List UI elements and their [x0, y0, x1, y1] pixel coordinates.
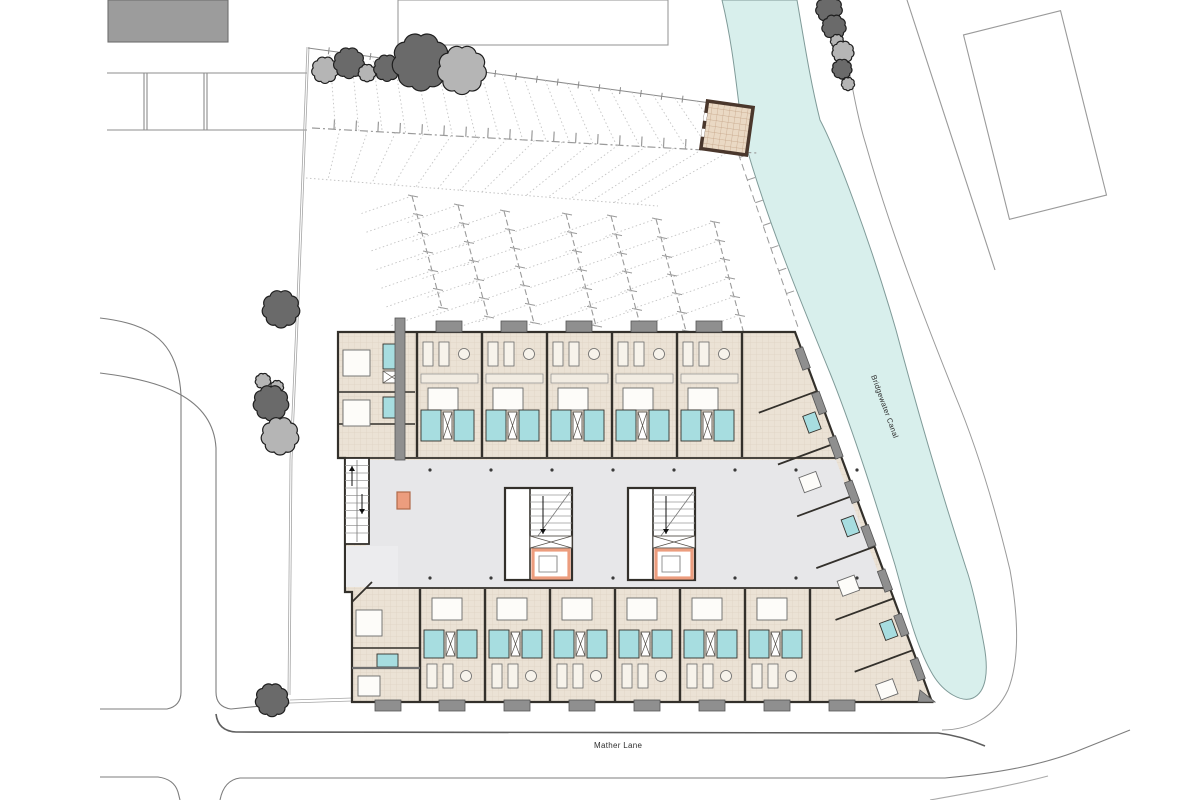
lift-shaft [397, 492, 410, 509]
bathroom-pod [714, 410, 734, 441]
bed [497, 598, 527, 620]
sofa [504, 342, 514, 366]
parking-stall-line [452, 211, 504, 229]
table [589, 349, 600, 360]
bed [688, 388, 718, 410]
bathroom-pod [717, 630, 737, 658]
road-kerb-west-inner [100, 373, 290, 709]
parking-tick [444, 125, 445, 135]
lift-shaft [533, 550, 569, 578]
bed [627, 598, 657, 620]
parking-tick [786, 291, 794, 294]
wardrobe [551, 374, 608, 383]
parking-stall-line [481, 72, 500, 139]
balcony [375, 700, 401, 711]
bathroom-pod [554, 630, 574, 658]
parking-stall-line [375, 252, 427, 270]
parking-stall-line [482, 141, 535, 193]
balcony [829, 700, 855, 711]
bed [343, 350, 370, 376]
road-edge-bottom-right [930, 776, 1048, 800]
bathroom-pod [454, 410, 474, 441]
sofa [687, 664, 697, 688]
parking-tick [682, 96, 683, 103]
south-kerb-east [220, 730, 1130, 800]
bed [562, 598, 592, 620]
parking-tick [620, 135, 621, 145]
site-plan-page: Mather Lane Bridgewater Canal [0, 0, 1200, 800]
parking-tick [598, 134, 599, 144]
parking-stall-line [619, 275, 671, 293]
parking-tick [747, 177, 755, 180]
bathroom-pod [619, 630, 639, 658]
parking-stall-line [514, 214, 566, 232]
balcony [699, 700, 725, 711]
parking-stall-line [385, 289, 437, 307]
parking-tick [466, 127, 467, 137]
column [489, 468, 492, 471]
balcony [504, 700, 530, 711]
parking-stall-line [460, 139, 507, 190]
parking-tick [532, 130, 533, 140]
tree-icon [253, 386, 289, 421]
column [489, 576, 492, 579]
bathroom-pod [377, 654, 398, 667]
parking-tick [771, 246, 779, 249]
entrance-hall [346, 546, 398, 587]
column [794, 576, 797, 579]
wardrobe [616, 374, 673, 383]
parking-area [306, 47, 799, 352]
parking-stall-line [477, 304, 529, 322]
sofa [439, 342, 449, 366]
table [461, 671, 472, 682]
bed [358, 676, 380, 696]
parking-stall-line [365, 215, 417, 233]
parking-tick [516, 73, 517, 80]
parking-tick [378, 122, 379, 132]
wardrobe [421, 374, 478, 383]
parking-tick [763, 223, 771, 226]
table [786, 671, 797, 682]
balcony [764, 700, 790, 711]
parking-stall-line [662, 222, 714, 240]
parking-stall-line [394, 134, 423, 185]
bathroom-pod [424, 630, 444, 658]
parking-stall-line [667, 241, 719, 259]
sofa [492, 664, 502, 688]
parking-stall-line [502, 75, 523, 140]
bathroom-pod [587, 630, 607, 658]
sofa [553, 342, 563, 366]
parking-stall-line [350, 131, 368, 181]
parking-stall-line [328, 130, 340, 180]
sofa [508, 664, 518, 688]
parking-tick [328, 47, 329, 54]
parking-stall-line [604, 219, 656, 237]
table [656, 671, 667, 682]
column [733, 468, 736, 471]
parking-tick [422, 124, 423, 134]
bathroom-pod [584, 410, 604, 441]
parking-stall-line [360, 196, 412, 214]
parking-tick [755, 200, 763, 203]
bathroom-pod [652, 630, 672, 658]
sofa [683, 342, 693, 366]
column [611, 576, 614, 579]
tree-icon [832, 59, 852, 79]
table [459, 349, 470, 360]
tree-icon [262, 291, 300, 328]
lift-shaft [656, 550, 692, 578]
balcony [439, 700, 465, 711]
wardrobe [486, 374, 543, 383]
table [654, 349, 665, 360]
sofa [752, 664, 762, 688]
bathroom-pod [457, 630, 477, 658]
parking-tick [578, 81, 579, 88]
bed [623, 388, 653, 410]
table [719, 349, 730, 360]
column [672, 468, 675, 471]
parking-tick [641, 137, 642, 147]
sofa [618, 342, 628, 366]
bathroom-pod [749, 630, 769, 658]
parking-stall-line [524, 77, 546, 141]
parking-tick [356, 120, 357, 130]
balcony [436, 321, 462, 332]
sofa [488, 342, 498, 366]
road-edge-right [907, 0, 995, 270]
balcony [566, 321, 592, 332]
parking-tick [370, 53, 371, 60]
balcony [631, 321, 657, 332]
site-boundary-south [290, 698, 352, 703]
table [721, 671, 732, 682]
bed [343, 400, 370, 426]
sofa [699, 342, 709, 366]
bathroom-pod [649, 410, 669, 441]
bathroom-pod [681, 410, 701, 441]
bathroom-pod [421, 410, 441, 441]
bed [757, 598, 787, 620]
sofa [638, 664, 648, 688]
parking-tick [640, 90, 641, 97]
parking-stall-line [567, 83, 593, 143]
column [428, 576, 431, 579]
bed [493, 388, 523, 410]
bathroom-pod [684, 630, 704, 658]
bed [692, 598, 722, 620]
parking-tick [495, 70, 496, 77]
bathroom-pod [616, 410, 636, 441]
parking-tick [400, 123, 401, 133]
parking-stall-line [609, 238, 661, 256]
column [611, 468, 614, 471]
parking-tick [576, 133, 577, 143]
parking-stall-line [504, 142, 562, 194]
south-kerb-west [100, 777, 180, 800]
parking-stall-line [682, 297, 734, 315]
column [794, 468, 797, 471]
parking-stall-line [438, 137, 479, 188]
parking-tick [510, 129, 511, 139]
sofa [622, 664, 632, 688]
tree-icon [255, 684, 288, 717]
parking-tick [599, 84, 600, 91]
bed [428, 388, 458, 410]
table [524, 349, 535, 360]
site-plan-drawing: Mather Lane Bridgewater Canal [0, 0, 1200, 800]
table [591, 671, 602, 682]
parking-stall-line [614, 150, 701, 203]
refuse-store [699, 101, 753, 155]
sofa [557, 664, 567, 688]
parking-stall-line [380, 271, 432, 289]
bathroom-pod [489, 630, 509, 658]
bed [432, 598, 462, 620]
tree-icon [358, 64, 376, 81]
table [526, 671, 537, 682]
road-label: Mather Lane [594, 741, 642, 750]
sofa [573, 664, 583, 688]
parking-stall-line [677, 278, 729, 296]
external-wall [395, 318, 405, 460]
sofa [427, 664, 437, 688]
parking-tick [488, 128, 489, 138]
parking-tick [334, 119, 335, 129]
parking-stall-line [564, 235, 616, 253]
column [550, 468, 553, 471]
bed [558, 388, 588, 410]
parking-stall-line [574, 272, 626, 290]
parking-stall-line [624, 294, 676, 312]
balcony [696, 321, 722, 332]
balcony [634, 700, 660, 711]
parking-stall-line [653, 95, 686, 149]
parking-stall-line [548, 145, 618, 197]
road-kerb-west-outer [100, 318, 181, 709]
parking-stall-line [526, 144, 590, 196]
parking-stall-line [370, 233, 422, 251]
road-markings-top-left [107, 73, 307, 130]
site-boundary-west [288, 47, 309, 695]
offsite-building-massing [108, 0, 228, 42]
parking-stall-line [570, 147, 646, 199]
balcony [501, 321, 527, 332]
parking-stall-line [372, 133, 395, 184]
parking-tick [620, 87, 621, 94]
sofa [703, 664, 713, 688]
parking-stall-line [529, 270, 581, 288]
tree-icon [438, 46, 487, 94]
sofa [569, 342, 579, 366]
sofa [634, 342, 644, 366]
bathroom-pod [551, 410, 571, 441]
bathroom-pod [486, 410, 506, 441]
column [428, 468, 431, 471]
bathroom-pod [519, 410, 539, 441]
parking-tick [536, 76, 537, 83]
wardrobe [681, 374, 738, 383]
balcony [569, 700, 595, 711]
bed [356, 610, 382, 636]
parking-stall-line [610, 89, 640, 146]
parking-stall-line [672, 259, 724, 277]
parking-tick [557, 79, 558, 86]
sofa [768, 664, 778, 688]
sofa [443, 664, 453, 688]
tree-icon [841, 78, 854, 91]
offsite-building-outline-top [398, 0, 668, 45]
column [855, 468, 858, 471]
parking-tick [779, 268, 787, 271]
parking-tick [661, 93, 662, 100]
tree-icon [261, 418, 299, 455]
bathroom-pod [782, 630, 802, 658]
parking-stall-line [636, 151, 729, 204]
parking-stall-line [524, 251, 576, 269]
parking-stall-line [589, 86, 617, 145]
parking-tick [663, 138, 664, 148]
parking-stall-line [569, 253, 621, 271]
offsite-building-outline-right [964, 11, 1107, 220]
column [733, 576, 736, 579]
stair-core [505, 488, 572, 580]
parking-stall-line [519, 233, 571, 251]
bathroom-pod [522, 630, 542, 658]
parking-stall-line [614, 256, 666, 274]
stair-core [628, 488, 695, 580]
parking-stall-line [534, 289, 586, 307]
sofa [423, 342, 433, 366]
parking-tick [554, 132, 555, 142]
parking-stall-line [545, 80, 569, 142]
